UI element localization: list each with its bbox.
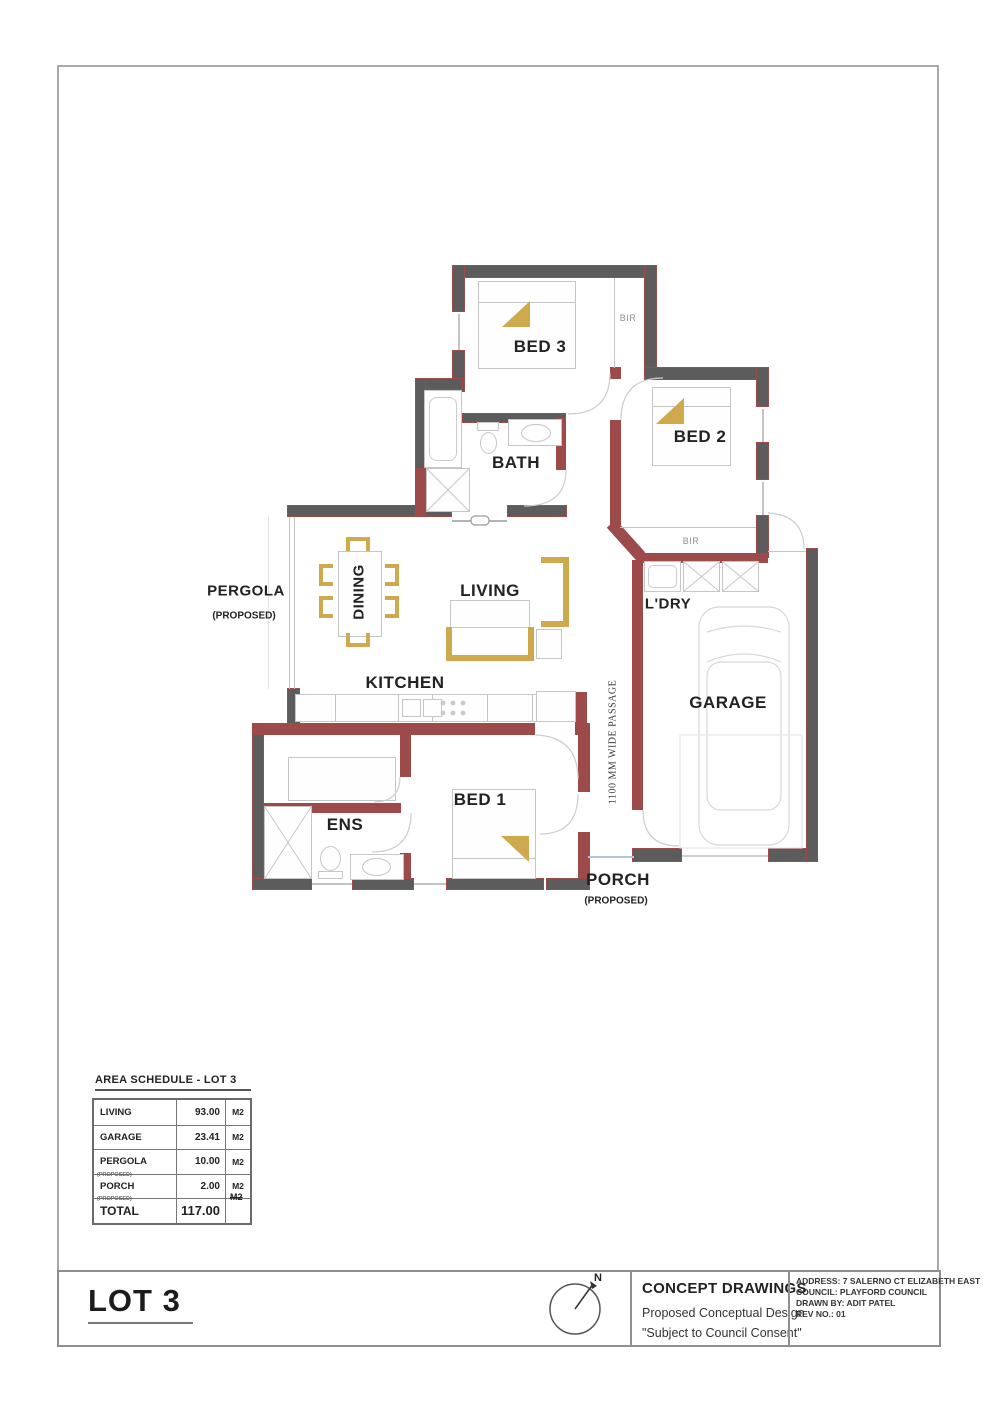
row-name-text: PORCH — [100, 1181, 134, 1192]
project-drawn-by: DRAWN BY: ADIT PATEL — [796, 1298, 895, 1308]
robe-label-bir: BIR — [620, 313, 637, 323]
drawing-disclaimer: "Subject to Council Consent" — [642, 1326, 802, 1340]
row-name: GARAGE — [94, 1126, 176, 1150]
row-name: TOTAL — [94, 1199, 176, 1223]
table-row: GARAGE 23.41 M2 — [94, 1125, 250, 1150]
room-label-ldry: L'DRY — [645, 596, 691, 613]
row-unit: M2 — [225, 1100, 250, 1125]
room-label-living: LIVING — [460, 581, 520, 601]
robe-label-bir: BIR — [683, 536, 700, 546]
north-arrow-icon — [545, 1276, 609, 1342]
room-label-bed3: BED 3 — [514, 337, 567, 357]
row-name-text: PERGOLA — [100, 1156, 147, 1167]
room-label-garage: GARAGE — [689, 693, 767, 713]
north-label: N — [594, 1272, 602, 1284]
drawing-heading: CONCEPT DRAWINGS — [642, 1280, 807, 1297]
row-unit: M2 — [225, 1150, 250, 1174]
room-label-bath: BATH — [492, 453, 540, 473]
struck-unit: M2 — [230, 1192, 243, 1202]
room-label-kitchen: KITCHEN — [365, 673, 444, 693]
sliding-door-icon — [452, 516, 507, 525]
project-rev-no: REV NO.: 01 — [796, 1309, 846, 1319]
row-unit: M2 — [225, 1126, 250, 1150]
stove-icon — [441, 701, 466, 716]
row-name: LIVING — [94, 1100, 176, 1125]
project-info-box: ADDRESS: 7 SALERNO CT ELIZABETH EAST COU… — [788, 1270, 941, 1347]
row-value: 117.00 — [176, 1199, 225, 1223]
row-value: 10.00 — [176, 1150, 225, 1174]
area-schedule-table: LIVING 93.00 M2 GARAGE 23.41 M2 PERGOLA(… — [92, 1098, 252, 1225]
row-name: PERGOLA(PROPOSED) — [94, 1150, 176, 1174]
row-value: 93.00 — [176, 1100, 225, 1125]
lot-title: LOT 3 — [88, 1283, 193, 1324]
room-label-bed1: BED 1 — [454, 790, 507, 810]
driveway-outline — [680, 735, 802, 848]
room-label-porch: PORCH — [586, 870, 650, 890]
table-row-total: TOTAL 117.00 M2 — [94, 1198, 250, 1223]
area-schedule-title: AREA SCHEDULE - LOT 3 — [95, 1074, 251, 1091]
room-label-ens: ENS — [327, 815, 363, 835]
porch-proposed-note: (PROPOSED) — [584, 896, 647, 907]
room-label-bed2: BED 2 — [674, 427, 727, 447]
room-label-pergola: PERGOLA — [207, 583, 285, 600]
table-row: PERGOLA(PROPOSED) 10.00 M2 — [94, 1149, 250, 1174]
passage-dimension-label: 1100 MM WIDE PASSAGE — [608, 680, 619, 804]
concept-drawings-box: CONCEPT DRAWINGS Proposed Conceptual Des… — [630, 1270, 788, 1347]
car-icon — [699, 607, 789, 845]
row-name: PORCH(PROPOSED) — [94, 1175, 176, 1199]
project-council: COUNCIL: PLAYFORD COUNCIL — [796, 1287, 927, 1297]
row-unit: M2 — [225, 1199, 250, 1223]
door-swing-arcs — [372, 373, 804, 852]
drawing-sheet: BED 3 BED 2 BED 1 BATH ENS LIVING DINING… — [0, 0, 1000, 1415]
table-row: PORCH(PROPOSED) 2.00 M2 — [94, 1174, 250, 1199]
room-label-dining: DINING — [351, 564, 368, 620]
row-value: 23.41 — [176, 1126, 225, 1150]
pergola-proposed-note: (PROPOSED) — [212, 611, 275, 622]
project-address: ADDRESS: 7 SALERNO CT ELIZABETH EAST — [796, 1276, 980, 1286]
row-value: 2.00 — [176, 1175, 225, 1199]
drawing-subheading: Proposed Conceptual Design — [642, 1306, 805, 1320]
table-row: LIVING 93.00 M2 — [94, 1100, 250, 1125]
